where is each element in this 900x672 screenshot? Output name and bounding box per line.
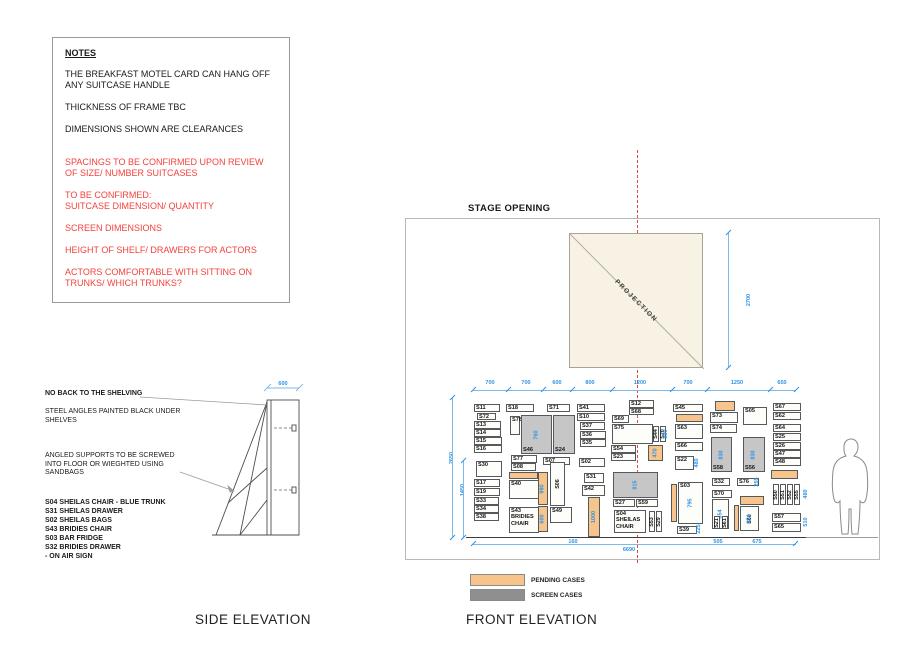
suitcase-S54: S54 <box>611 445 636 453</box>
suitcase-S38: S38 <box>474 513 499 521</box>
legend-row: PENDING CASES <box>470 574 585 586</box>
suitcase-S23: S23 <box>611 453 636 461</box>
suitcase-S66: S66 <box>675 442 703 451</box>
notes-item: THE BREAKFAST MOTEL CARD CAN HANG OFF AN… <box>65 69 277 91</box>
suitcase-S53: S53 <box>649 511 655 532</box>
suitcase-S02: S02 <box>579 458 605 467</box>
suitcase-S10: S10 <box>577 413 605 421</box>
suitcase-S26: S26 <box>773 442 801 450</box>
suitcase-S46: S46760 <box>521 415 552 454</box>
legend-row: SCREEN CASES <box>470 589 585 601</box>
side-case-list: S04 SHEILAS CHAIR - BLUE TRUNK S31 SHEIL… <box>45 498 166 561</box>
pending-case: 1000 <box>588 497 600 537</box>
suitcase-S32: S32 <box>712 478 730 486</box>
notes-item: TO BE CONFIRMED: SUITCASE DIMENSION/ QUA… <box>65 190 277 212</box>
suitcase-S08: S08 <box>511 463 536 471</box>
note-no-back: NO BACK TO THE SHELVING <box>45 390 142 399</box>
suitcase-S25: S25 <box>773 433 801 441</box>
suitcase-S19: S19 <box>474 488 500 496</box>
suitcase-wall: S11S72S13S14S15S16S30S17S19S33S34S38S18S… <box>466 398 806 548</box>
suitcase-S27: S27 <box>613 499 635 507</box>
projection-dim-line <box>728 233 729 368</box>
note-angled-supports: ANGLED SUPPORTS TO BE SCREWED INTO FLOOR… <box>45 452 175 478</box>
suitcase-S21: S21 <box>714 516 720 529</box>
suitcase-S59: S59 <box>636 499 658 507</box>
front-elevation-title: FRONT ELEVATION <box>466 612 597 627</box>
suitcase-S75: S75 <box>612 424 653 444</box>
suitcase-S57: S57 <box>772 513 801 522</box>
suitcase-S60: S60854 <box>740 506 759 531</box>
suitcase-S30: S30 <box>476 461 502 477</box>
notes-black-list: THE BREAKFAST MOTEL CARD CAN HANG OFF AN… <box>65 69 277 135</box>
suitcase-S58: S58830 <box>711 437 732 472</box>
projection-screen: PROJECTION <box>569 233 703 368</box>
suitcase-S47: S47 <box>773 450 801 458</box>
suitcase-S33: S33 <box>474 497 499 505</box>
suitcase-S45: S45 <box>673 404 703 412</box>
legend-swatch <box>470 589 525 601</box>
suitcase-S50: S50 <box>773 484 779 505</box>
suitcase-S36: S36 <box>580 431 606 439</box>
suitcase-S35: S35 <box>580 439 606 447</box>
notes-title: NOTES <box>65 48 277 59</box>
suitcase-S56: S56830 <box>743 437 765 472</box>
suitcase-S39: S39 <box>677 526 697 534</box>
suitcase-S43: S43 BRIDIES CHAIR <box>509 507 539 533</box>
suitcase-S11: S11 <box>474 404 500 412</box>
suitcase-S63: S63 <box>675 424 703 439</box>
suitcase-S42: S42 <box>582 485 605 496</box>
suitcase-S37: S37 <box>580 422 605 430</box>
suitcase-S12: S12 <box>629 400 654 408</box>
legend-swatch <box>470 574 525 586</box>
legend-label: PENDING CASES <box>531 577 585 584</box>
suitcase-S06: S06 <box>550 462 565 506</box>
notes-item: SCREEN DIMENSIONS <box>65 223 277 234</box>
suitcase-S62: S62 <box>773 412 801 420</box>
suitcase-S29: S29 <box>656 511 662 532</box>
suitcase-S67: S67 <box>773 403 801 411</box>
suitcase-S05: S05 <box>743 407 767 425</box>
suitcase-S73: S73 <box>710 412 738 423</box>
pending-case: 990 <box>538 472 548 505</box>
suitcase-S04: S04 SHEILAS CHAIR <box>614 510 646 533</box>
pending-case <box>509 472 538 479</box>
case: 815 <box>613 472 658 498</box>
suitcase-S52: S52 <box>787 484 793 505</box>
notes-item: THICKNESS OF FRAME TBC <box>65 102 277 113</box>
pending-case: 470 <box>648 445 663 461</box>
suitcase-S78: S78 <box>510 416 520 435</box>
pending-case <box>734 505 739 531</box>
notes-item: SPACINGS TO BE CONFIRMED UPON REVIEW OF … <box>65 157 277 179</box>
suitcase-S55: S55 <box>794 484 800 505</box>
suitcase-S13: S13 <box>474 421 501 429</box>
suitcase-S48: S48 <box>773 458 801 466</box>
pending-case <box>676 414 703 422</box>
wall-base-line <box>466 537 806 538</box>
note-steel-angles: STEEL ANGLES PAINTED BLACK UNDER SHELVES <box>45 408 180 425</box>
suitcase-S16: S16 <box>474 445 502 453</box>
notes-item: ACTORS COMFORTABLE WITH SITTING ON TRUNK… <box>65 267 277 289</box>
suitcase-S44: S44 <box>653 426 659 442</box>
suitcase-S14: S14 <box>474 429 501 437</box>
suitcase-S31: S31 <box>584 473 604 483</box>
suitcase-S24: S24 <box>553 415 575 454</box>
suitcase-S65: S65 <box>772 523 801 532</box>
suitcase-S69: S69 <box>612 415 629 423</box>
pending-case <box>715 401 735 411</box>
notes-red-list: SPACINGS TO BE CONFIRMED UPON REVIEW OF … <box>65 157 277 289</box>
suitcase-S03: S03795 <box>678 482 703 524</box>
pending-case <box>740 496 764 505</box>
legend: PENDING CASESSCREEN CASES <box>470 574 585 604</box>
pending-case <box>671 484 677 522</box>
suitcase-S68: S68 <box>629 408 654 415</box>
pending-case: 600 <box>538 506 548 532</box>
stage-opening-label: STAGE OPENING <box>468 203 550 214</box>
notes-box: NOTES THE BREAKFAST MOTEL CARD CAN HANG … <box>52 37 290 303</box>
suitcase-S70: S70 <box>712 490 732 498</box>
suitcase-S17: S17 <box>474 479 500 487</box>
suitcase-S49: S49 <box>550 507 572 523</box>
pending-case <box>771 470 798 479</box>
suitcase-S74: S74 <box>710 424 737 433</box>
suitcase-S71: S71 <box>547 404 570 412</box>
side-elevation-title: SIDE ELEVATION <box>195 612 311 627</box>
suitcase-S61: S61 <box>722 516 728 529</box>
suitcase-S64: S64 <box>773 424 801 432</box>
suitcase-S22: S22 <box>675 456 694 470</box>
notes-item: DIMENSIONS SHOWN ARE CLEARANCES <box>65 124 277 135</box>
drawing-sheet: NOTES THE BREAKFAST MOTEL CARD CAN HANG … <box>0 0 900 672</box>
legend-label: SCREEN CASES <box>531 592 582 599</box>
scale-figure <box>818 437 884 538</box>
suitcase-S77: S77 <box>511 455 537 463</box>
suitcase-S41: S41 <box>577 404 605 412</box>
suitcase-S72: S72 <box>477 413 496 420</box>
suitcase-S18: S18 <box>506 404 534 412</box>
suitcase-S34: S34 <box>474 505 499 513</box>
suitcase-S15: S15 <box>474 437 502 445</box>
suitcase-S51: S51 <box>780 484 786 505</box>
notes-item: HEIGHT OF SHELF/ DRAWERS FOR ACTORS <box>65 245 277 256</box>
suitcase-S40: S40 <box>509 480 539 499</box>
